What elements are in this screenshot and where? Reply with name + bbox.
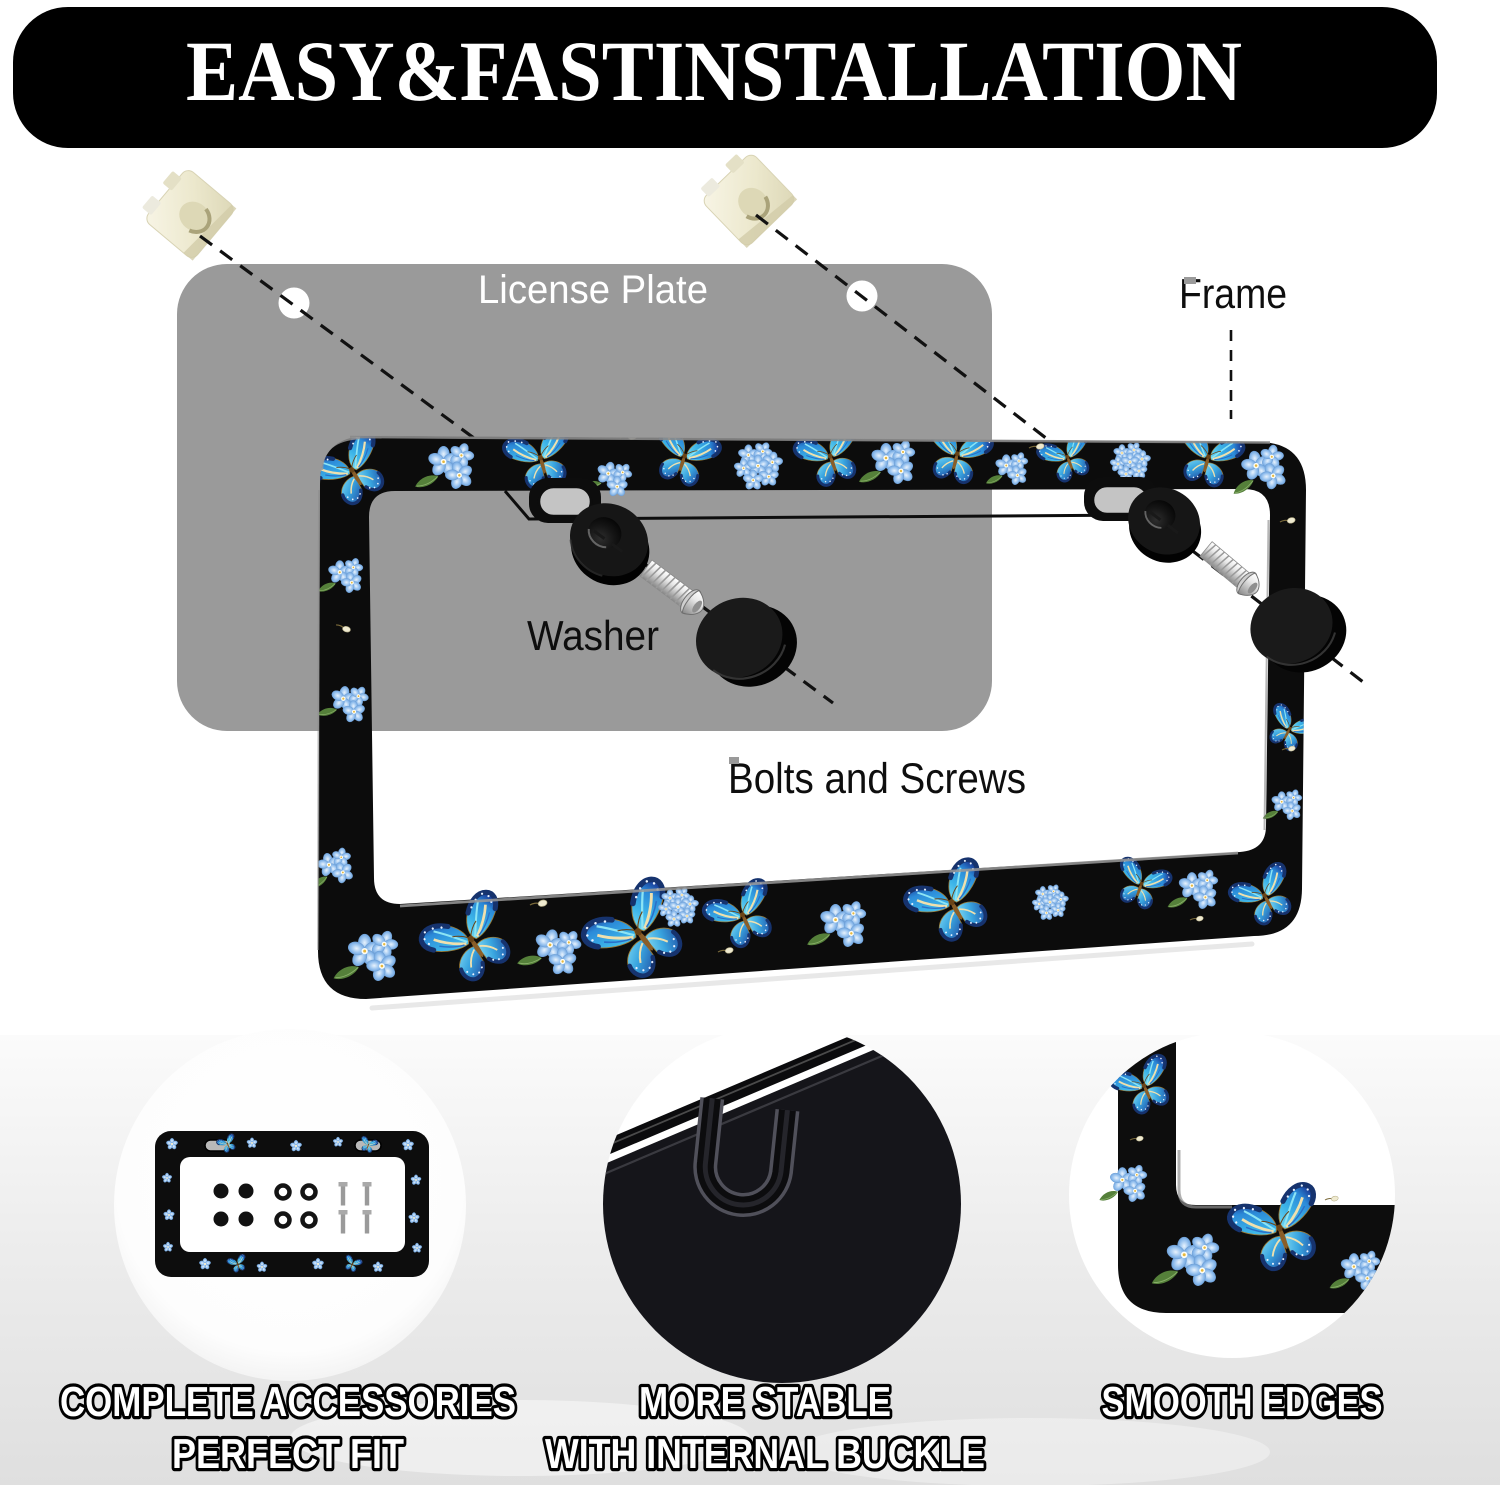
svg-text:MORE STABLE: MORE STABLE bbox=[639, 1378, 891, 1425]
svg-text:COMPLETE ACCESSORIES: COMPLETE ACCESSORIES bbox=[60, 1378, 516, 1425]
svg-text:EASY&FASTINSTALLATION: EASY&FASTINSTALLATION bbox=[186, 23, 1242, 119]
svg-text:SMOOTH EDGES: SMOOTH EDGES bbox=[1102, 1378, 1383, 1425]
svg-text:WITH INTERNAL BUCKLE: WITH INTERNAL BUCKLE bbox=[545, 1430, 985, 1477]
svg-text:Washer: Washer bbox=[527, 612, 659, 659]
svg-text:PERFECT FIT: PERFECT FIT bbox=[172, 1430, 404, 1477]
svg-text:License Plate: License Plate bbox=[478, 268, 708, 312]
svg-text:Bolts and Screws: Bolts and Screws bbox=[728, 755, 1026, 803]
